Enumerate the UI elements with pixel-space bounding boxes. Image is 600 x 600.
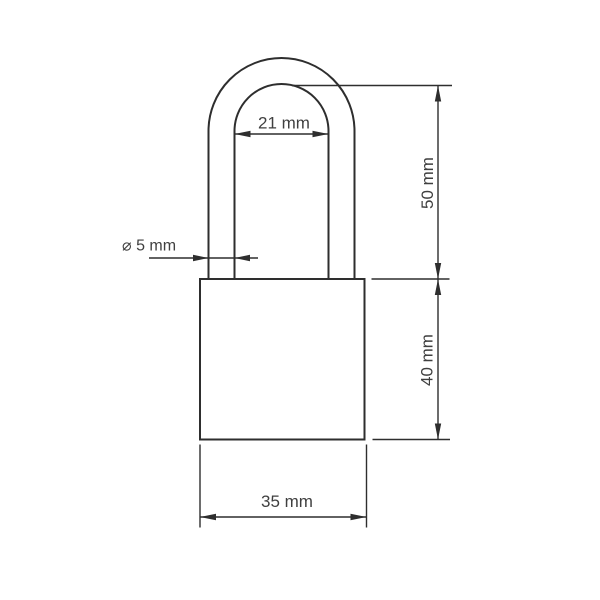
arrowhead-up: [435, 86, 441, 102]
dim-label-body-height: 40 mm: [418, 334, 437, 386]
arrowhead-left: [235, 255, 251, 261]
dim-label-shackle-diameter: ⌀ 5 mm: [122, 238, 176, 255]
arrowhead-right: [193, 255, 209, 261]
dim-label-shackle-height: 50 mm: [418, 157, 437, 209]
dim-shackle-inner-width: 21 mm: [235, 114, 329, 138]
shackle-outer-edge: [209, 58, 355, 280]
padlock-body: [200, 279, 365, 440]
arrowhead-down: [435, 424, 441, 440]
arrowhead-left: [235, 131, 251, 137]
arrowhead-down: [435, 263, 441, 279]
padlock-technical-drawing: 21 mm ⌀ 5 mm 50 mm 40 mm 35 mm: [0, 0, 600, 600]
dim-label-shackle-inner-width: 21 mm: [258, 114, 310, 133]
arrowhead-up: [435, 279, 441, 295]
dim-body-height: 40 mm: [372, 279, 451, 440]
dim-body-width: 35 mm: [200, 445, 367, 528]
dim-label-body-width: 35 mm: [261, 492, 313, 511]
arrowhead-left: [200, 514, 216, 520]
dim-shackle-diameter: ⌀ 5 mm: [122, 238, 258, 262]
dim-shackle-height: 50 mm: [292, 86, 452, 280]
arrowhead-right: [313, 131, 329, 137]
arrowhead-right: [351, 514, 367, 520]
